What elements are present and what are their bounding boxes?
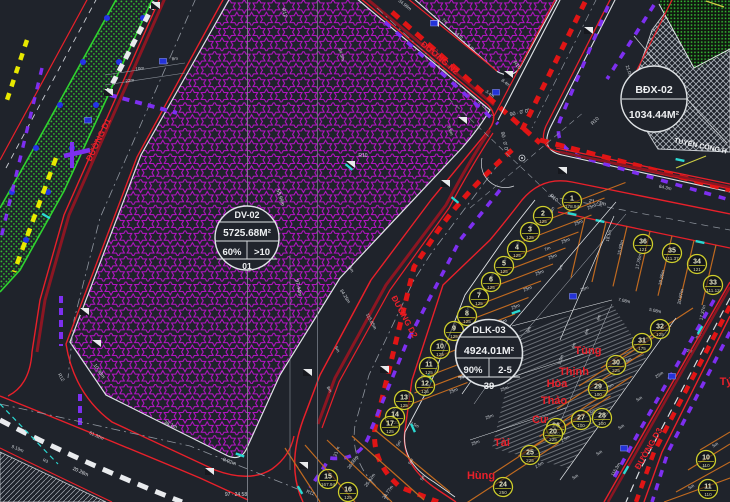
svg-text:34: 34	[693, 259, 701, 266]
svg-text:125: 125	[513, 253, 521, 258]
svg-text:225: 225	[549, 437, 557, 442]
svg-text:Cư: Cư	[532, 414, 548, 426]
svg-text:DV-02: DV-02	[234, 210, 259, 220]
svg-text:24: 24	[499, 482, 507, 489]
svg-text:01: 01	[242, 261, 252, 271]
svg-text:Tý: Tý	[720, 376, 730, 388]
svg-text:100: 100	[598, 421, 606, 426]
svg-text:Hòa: Hòa	[547, 378, 569, 390]
svg-text:5725.68M²: 5725.68M²	[223, 228, 271, 239]
svg-text:250: 250	[499, 490, 507, 495]
svg-text:125: 125	[400, 403, 408, 408]
svg-text:225: 225	[526, 458, 534, 463]
svg-text:100: 100	[577, 423, 585, 428]
svg-text:Tùng: Tùng	[575, 345, 602, 357]
svg-text:Thịnh: Thịnh	[559, 366, 589, 378]
svg-text:175: 175	[638, 346, 646, 351]
svg-text:6: 6	[489, 277, 493, 284]
svg-text:1034.44M²: 1034.44M²	[629, 109, 680, 121]
svg-text:125: 125	[475, 301, 483, 306]
svg-text:Tài: Tài	[494, 437, 510, 449]
svg-text:125: 125	[421, 389, 429, 394]
svg-text:BĐX-02: BĐX-02	[635, 84, 673, 96]
svg-text:12: 12	[421, 381, 429, 388]
svg-text:125: 125	[386, 429, 394, 434]
svg-text:111.37: 111.37	[665, 256, 679, 261]
svg-text:8: 8	[465, 311, 469, 318]
svg-text:121: 121	[639, 247, 647, 252]
svg-text:167.94: 167.94	[321, 482, 335, 487]
svg-text:97 ∙ 24.58: 97 ∙ 24.58	[225, 492, 247, 498]
svg-text:178.94: 178.94	[565, 204, 579, 209]
svg-text:125: 125	[436, 352, 444, 357]
svg-text:121: 121	[693, 267, 701, 272]
svg-text:110: 110	[704, 492, 712, 497]
svg-text:31: 31	[638, 338, 646, 345]
svg-text:>10: >10	[254, 247, 270, 258]
svg-text:28: 28	[598, 413, 606, 420]
svg-text:9: 9	[452, 326, 456, 333]
svg-text:60%: 60%	[222, 247, 242, 258]
svg-text:5: 5	[502, 261, 506, 268]
svg-text:100: 100	[594, 392, 602, 397]
svg-text:15: 15	[324, 474, 332, 481]
svg-text:125: 125	[463, 319, 471, 324]
svg-text:111.12: 111.12	[706, 288, 720, 293]
svg-text:125: 125	[450, 334, 458, 339]
svg-text:30: 30	[612, 360, 620, 367]
svg-text:29: 29	[594, 384, 602, 391]
svg-text:11: 11	[704, 484, 712, 491]
svg-text:2-5: 2-5	[498, 365, 512, 376]
svg-text:10: 10	[436, 344, 444, 351]
svg-text:13: 13	[400, 395, 408, 402]
svg-text:39: 39	[484, 381, 495, 392]
svg-text:35: 35	[668, 248, 676, 255]
svg-text:32: 32	[656, 324, 664, 331]
svg-text:125: 125	[539, 219, 547, 224]
svg-text:Thảo: Thảo	[541, 395, 568, 407]
svg-text:125: 125	[656, 332, 664, 337]
svg-text:4: 4	[515, 245, 519, 252]
svg-text:125: 125	[487, 285, 495, 290]
svg-text:125: 125	[526, 235, 534, 240]
svg-text:R10: R10	[358, 153, 367, 159]
svg-text:Hùng: Hùng	[467, 470, 495, 482]
svg-text:10: 10	[702, 455, 710, 462]
svg-text:7: 7	[477, 293, 481, 300]
svg-text:125: 125	[425, 370, 433, 375]
svg-text:90%: 90%	[463, 365, 483, 376]
svg-text:3: 3	[528, 227, 532, 234]
svg-text:33: 33	[709, 280, 717, 287]
svg-text:225: 225	[612, 368, 620, 373]
svg-text:36: 36	[639, 239, 647, 246]
svg-text:25: 25	[526, 450, 534, 457]
svg-text:4924.01M²: 4924.01M²	[464, 345, 515, 357]
svg-text:20: 20	[549, 429, 557, 436]
svg-text:17: 17	[386, 421, 394, 428]
svg-text:125: 125	[500, 269, 508, 274]
svg-text:2: 2	[541, 211, 545, 218]
svg-text:125: 125	[344, 495, 352, 500]
svg-text:110: 110	[702, 463, 710, 468]
svg-text:27: 27	[577, 415, 585, 422]
svg-text:1: 1	[570, 196, 574, 203]
svg-text:DLK-03: DLK-03	[472, 325, 505, 336]
svg-text:8m: 8m	[171, 56, 178, 62]
svg-text:11: 11	[425, 362, 433, 369]
svg-text:16: 16	[344, 487, 352, 494]
